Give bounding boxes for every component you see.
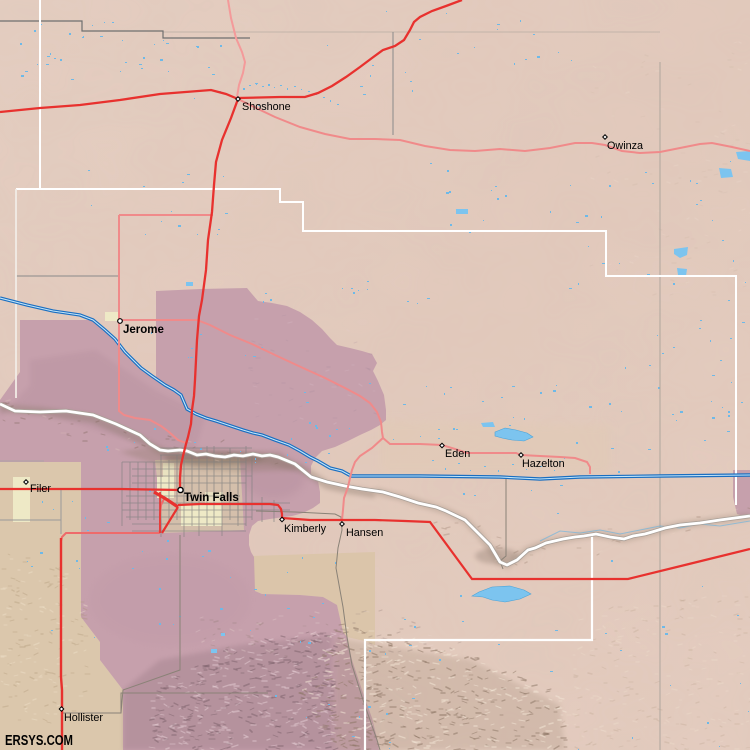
svg-text:Owinza: Owinza <box>607 140 643 152</box>
svg-text:Hansen: Hansen <box>346 527 383 539</box>
svg-text:Jerome: Jerome <box>123 324 164 336</box>
svg-text:Hazelton: Hazelton <box>522 458 565 470</box>
svg-text:Eden: Eden <box>445 448 470 460</box>
svg-text:ERSYS.COM: ERSYS.COM <box>5 733 73 749</box>
svg-text:Hollister: Hollister <box>64 712 103 724</box>
svg-text:Shoshone: Shoshone <box>242 101 291 113</box>
svg-text:Filer: Filer <box>30 483 51 495</box>
svg-text:Twin Falls: Twin Falls <box>184 492 239 504</box>
svg-text:Kimberly: Kimberly <box>284 523 327 535</box>
